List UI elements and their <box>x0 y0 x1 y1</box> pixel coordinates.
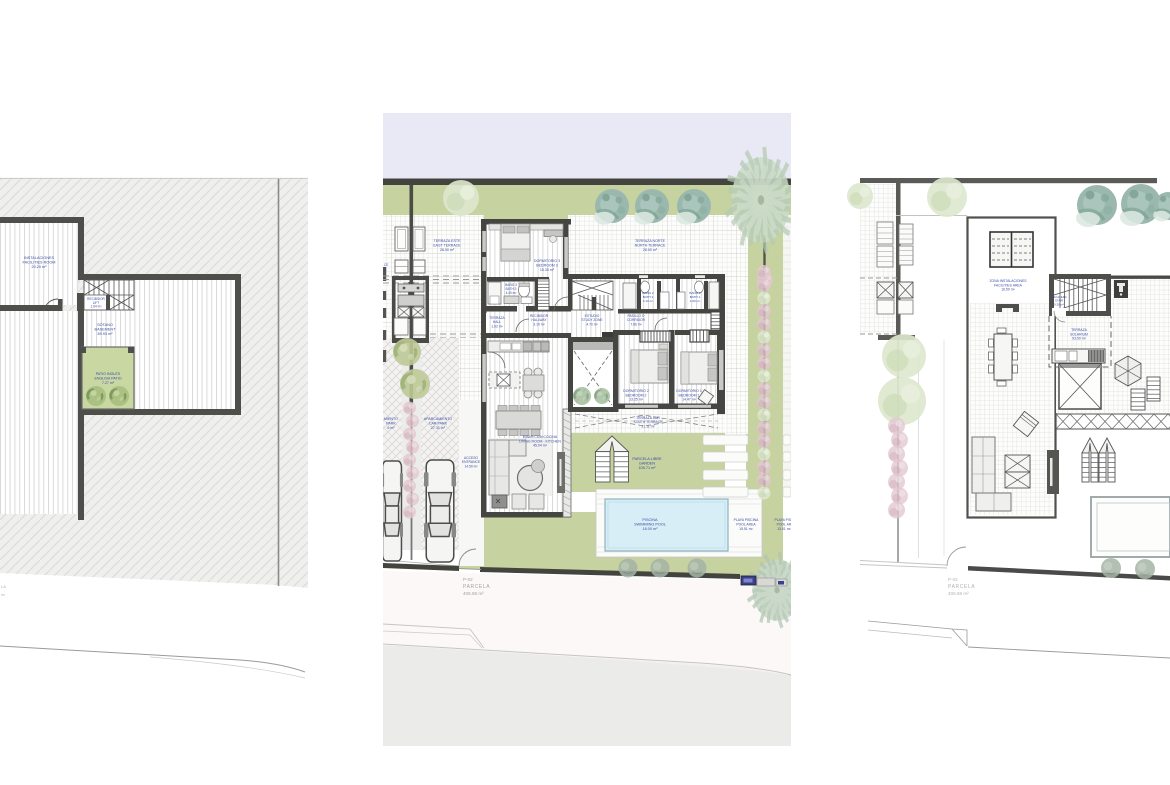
svg-text:16.59 m²: 16.59 m² <box>1001 288 1015 292</box>
svg-text:TERRAZA ESTE: TERRAZA ESTE <box>434 239 462 243</box>
svg-text:CE: CE <box>384 263 388 267</box>
svg-text:3.10 m²: 3.10 m² <box>533 322 545 326</box>
svg-text:4.00 m²: 4.00 m² <box>690 299 701 303</box>
svg-text:4.70 m²: 4.70 m² <box>586 322 598 326</box>
svg-text:POOL AR: POOL AR <box>777 522 792 526</box>
svg-text:PARCELA LIBRE: PARCELA LIBRE <box>632 457 662 461</box>
svg-text:13.25 m²: 13.25 m² <box>629 398 644 402</box>
svg-text:FACILITIES ROOM: FACILITIES ROOM <box>23 261 56 265</box>
svg-text:15.30 m²: 15.30 m² <box>540 268 555 272</box>
svg-text:4.10 m²: 4.10 m² <box>643 299 654 303</box>
svg-text:SÓTANO: SÓTANO <box>97 322 113 327</box>
svg-text:93.50 m²: 93.50 m² <box>1072 337 1086 341</box>
svg-text:1.64 m²: 1.64 m² <box>91 305 102 309</box>
svg-text:18.00 m²: 18.00 m² <box>643 527 659 531</box>
svg-text:406.69 m²: 406.69 m² <box>463 591 484 596</box>
svg-text:7.27 m²: 7.27 m² <box>102 381 115 385</box>
svg-text:P-02: P-02 <box>463 577 473 582</box>
svg-text:406.69 m²: 406.69 m² <box>948 591 969 596</box>
svg-text:14.50 m²: 14.50 m² <box>464 464 478 468</box>
svg-text:7.86 m²: 7.86 m² <box>630 322 642 326</box>
svg-text:89.93 m²: 89.93 m² <box>98 332 114 336</box>
svg-text:TERRAZA NORTE: TERRAZA NORTE <box>635 239 666 243</box>
svg-text:MIENTO: MIENTO <box>384 417 398 421</box>
svg-text:ENGLISH PATIO: ENGLISH PATIO <box>94 376 121 380</box>
svg-text:P-02: P-02 <box>948 577 958 582</box>
svg-text:PATIO INGLÉS: PATIO INGLÉS <box>96 371 121 376</box>
svg-text:PARCELA: PARCELA <box>463 584 490 590</box>
svg-text:20.20 m²: 20.20 m² <box>32 265 48 269</box>
svg-text:PISCINA: PISCINA <box>642 518 658 522</box>
svg-text:LA: LA <box>1 584 6 589</box>
svg-text:BASEMENT: BASEMENT <box>95 328 117 332</box>
svg-text:105.71 m²: 105.71 m² <box>638 466 656 470</box>
svg-text:CAR PARK: CAR PARK <box>429 421 448 425</box>
svg-text:NORTH TERRACE: NORTH TERRACE <box>635 243 666 247</box>
svg-text:27.31 m²: 27.31 m² <box>431 426 446 430</box>
svg-text:4.40 m²: 4.40 m² <box>506 291 517 295</box>
svg-text:PARK: PARK <box>386 421 396 425</box>
svg-text:9.30 m²: 9.30 m² <box>1054 302 1064 306</box>
svg-text:GARDEN: GARDEN <box>639 462 656 466</box>
svg-text:PLAYA PISCINA: PLAYA PISCINA <box>734 518 759 522</box>
svg-text:28.00 m²: 28.00 m² <box>440 248 455 252</box>
svg-text:14.47 m²: 14.47 m² <box>682 398 697 402</box>
svg-text:1.62 m²: 1.62 m² <box>491 324 503 328</box>
svg-text:15.51 m²: 15.51 m² <box>739 527 753 531</box>
svg-text:EAST TERRACE: EAST TERRACE <box>433 243 461 247</box>
svg-text:6 m²: 6 m² <box>387 426 395 430</box>
svg-text:DORMITORIO 3: DORMITORIO 3 <box>534 259 560 263</box>
svg-text:28.00 m²: 28.00 m² <box>643 248 658 252</box>
svg-text:INSTALACIONES: INSTALACIONES <box>24 256 55 260</box>
svg-text:BEDROOM 3: BEDROOM 3 <box>536 263 558 267</box>
svg-text:PARCELA: PARCELA <box>948 584 975 590</box>
svg-text:E: E <box>384 268 386 272</box>
svg-text:SWIMMING POOL: SWIMMING POOL <box>634 523 666 527</box>
svg-text:APARCAMIENTO: APARCAMIENTO <box>424 417 453 421</box>
svg-text:45.04 m²: 45.04 m² <box>533 444 548 448</box>
svg-text:POOL AREA: POOL AREA <box>736 522 756 526</box>
svg-text:13.01 m²: 13.01 m² <box>777 527 791 531</box>
